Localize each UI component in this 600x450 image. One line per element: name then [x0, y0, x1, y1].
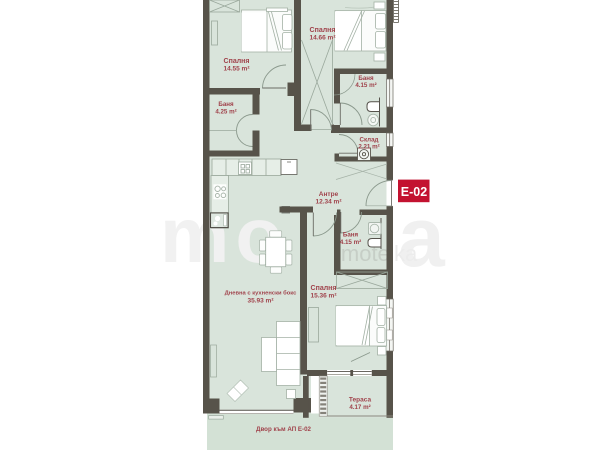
svg-text:Дневна с кухненски бокс: Дневна с кухненски бокс — [225, 290, 297, 297]
svg-text:15.36 m²: 15.36 m² — [310, 293, 337, 300]
svg-text:Баня: Баня — [343, 232, 359, 239]
svg-text:12.34 m²: 12.34 m² — [315, 199, 342, 206]
svg-text:4.25 m²: 4.25 m² — [215, 109, 236, 116]
svg-text:Спалня: Спалня — [310, 27, 336, 34]
svg-text:Тераса: Тераса — [349, 397, 372, 404]
svg-text:Антре: Антре — [319, 191, 339, 198]
svg-text:a: a — [398, 190, 446, 284]
svg-text:Двор към АП Е-02: Двор към АП Е-02 — [256, 426, 311, 433]
svg-text:ka: ka — [394, 241, 418, 266]
svg-text:4.17 m²: 4.17 m² — [349, 404, 370, 411]
svg-text:14.55 m²: 14.55 m² — [223, 66, 250, 73]
svg-text:35.93 m²: 35.93 m² — [247, 298, 274, 305]
svg-text:Баня: Баня — [358, 75, 374, 82]
svg-text:2.21 m²: 2.21 m² — [358, 144, 379, 151]
svg-text:4.15 m²: 4.15 m² — [340, 239, 361, 246]
svg-text:Баня: Баня — [218, 101, 234, 108]
svg-text:Склад: Склад — [360, 137, 379, 144]
svg-text:4.15 m²: 4.15 m² — [355, 82, 376, 89]
svg-text:E-02: E-02 — [401, 185, 427, 199]
svg-text:Спалня: Спалня — [311, 285, 337, 292]
svg-text:14.66 m²: 14.66 m² — [309, 35, 336, 42]
svg-text:Спалня: Спалня — [224, 58, 250, 65]
